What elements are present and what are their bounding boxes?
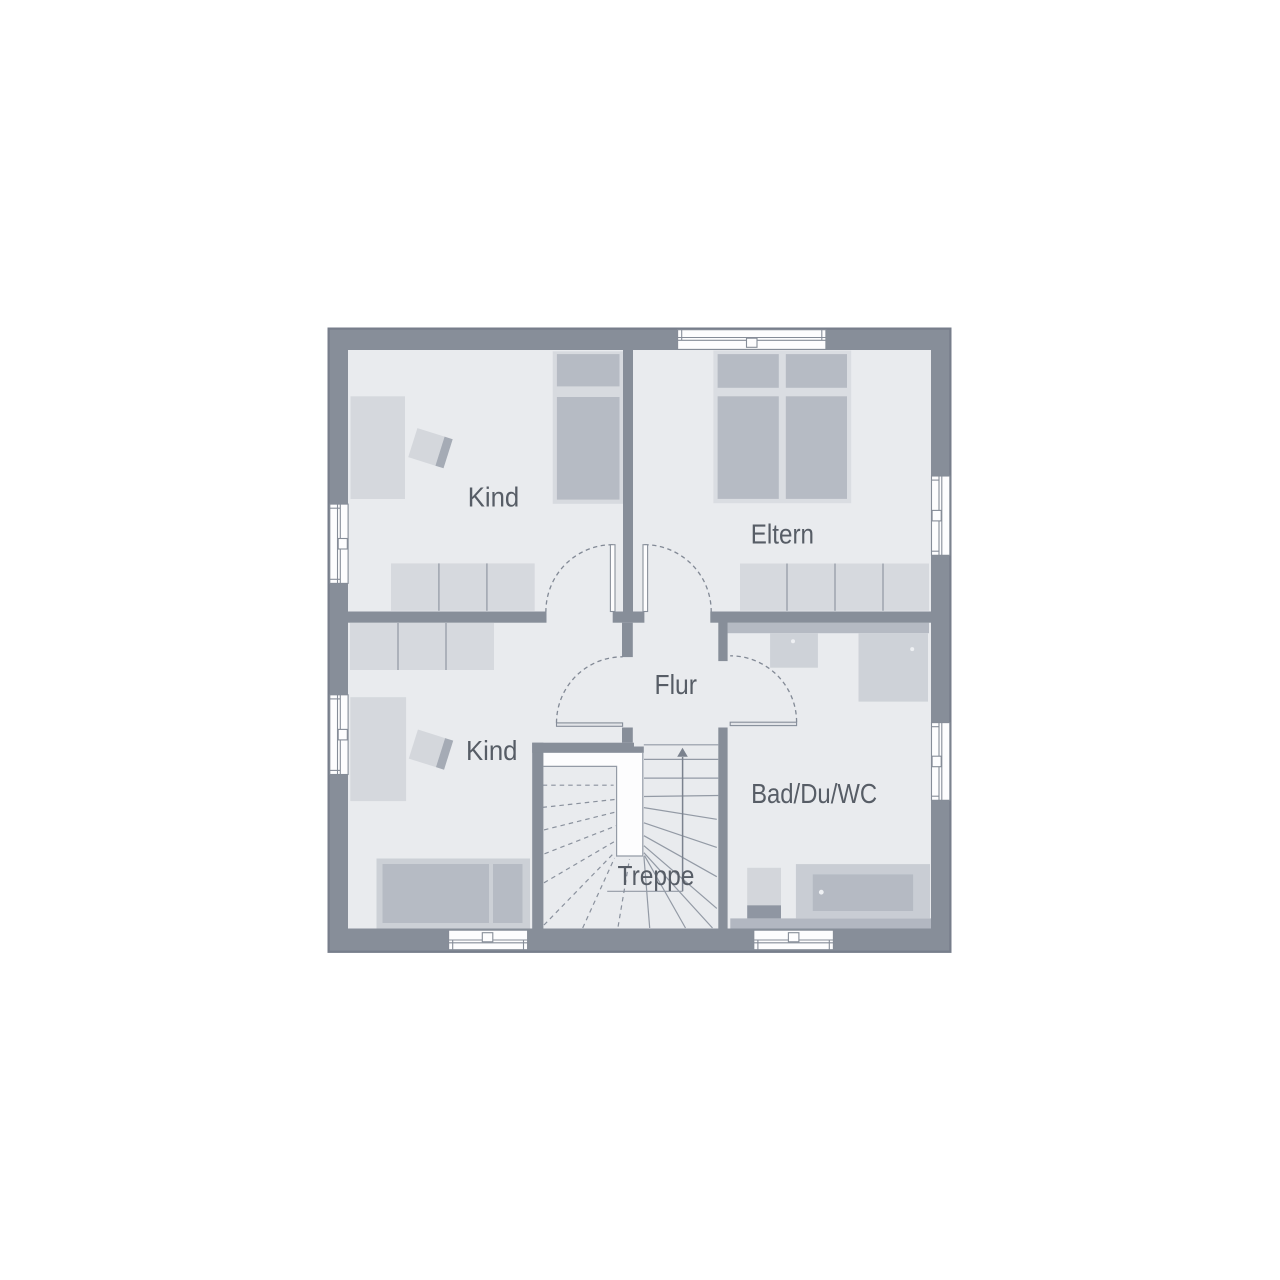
svg-text:Eltern: Eltern [751,519,814,550]
svg-text:Flur: Flur [655,669,698,700]
svg-text:Bad/Du/WC: Bad/Du/WC [751,778,877,809]
svg-text:Kind: Kind [466,735,518,766]
svg-text:Treppe: Treppe [618,860,695,891]
svg-text:Kind: Kind [468,482,520,513]
